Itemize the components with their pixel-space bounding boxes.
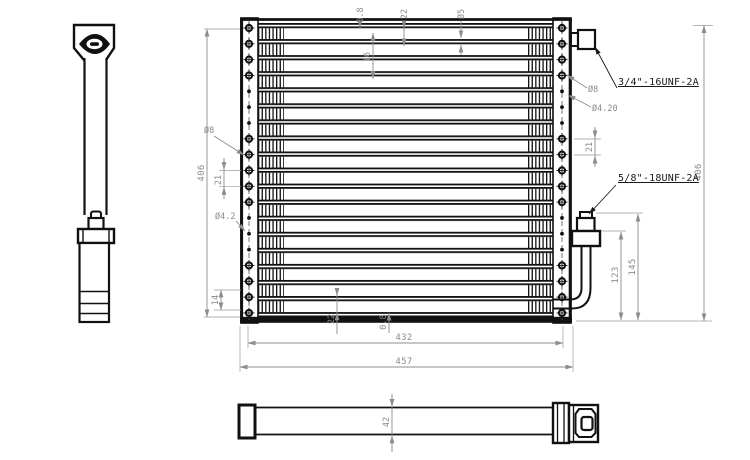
dim-tube-dia-label: Ø5 xyxy=(456,9,467,19)
dim-tube-pitch-top-label: 22 xyxy=(400,9,410,19)
dim-pipe-length-inner: 123 xyxy=(601,231,626,320)
dim-hole-pitch-left: 21 xyxy=(214,158,241,199)
dim-hole-small-left-label: Ø4.2 xyxy=(215,211,235,222)
side-view-fitting-neck xyxy=(89,218,104,229)
callout-top-port-label: 3/4"-16UNF-2A xyxy=(618,77,699,88)
side-view-tube-body xyxy=(85,58,107,215)
dim-pipe-length-inner-label: 123 xyxy=(611,266,621,283)
side-view-canister xyxy=(80,243,110,322)
dim-hole-dia-left: Ø8 xyxy=(204,125,244,155)
dim-core-width-label: 432 xyxy=(395,333,412,343)
dim-bottom-offset: 14 xyxy=(211,290,241,310)
dim-fin-height-label: 16 xyxy=(363,52,373,62)
dim-tube-pitch-bottom-label: 22 xyxy=(327,314,337,324)
dim-core-width: 432 xyxy=(248,326,563,348)
bottom-view-left-cap xyxy=(239,405,255,438)
dim-hole-pitch-right-label: 21 xyxy=(585,142,595,152)
dim-hole-small-right: Ø4.20 xyxy=(568,95,618,114)
dim-tube-wall-bottom: 0.8 xyxy=(379,313,389,333)
dim-depth: 42 xyxy=(382,394,392,452)
dim-hole-pitch-right: 21 xyxy=(574,127,601,167)
side-view-eye-slot xyxy=(90,42,99,46)
dim-tube-wall-bottom-label: 0.8 xyxy=(379,314,389,329)
dim-hole-small-right-label: Ø4.20 xyxy=(592,103,618,114)
technical-drawing: 406 406 432 457 0.8 xyxy=(0,0,750,460)
side-view xyxy=(74,25,114,322)
bottom-view-header-end xyxy=(553,403,569,443)
dim-height-left-label: 406 xyxy=(197,164,207,181)
dim-hole-dia-right-label: Ø8 xyxy=(588,84,598,95)
top-port-fitting xyxy=(571,30,595,49)
dim-hole-pitch-left-label: 21 xyxy=(214,175,224,185)
callout-bottom-port-label: 5/8"-18UNF-2A xyxy=(618,173,699,184)
dim-height-left: 406 xyxy=(197,29,240,317)
dim-tube-wall-top-label: 0.8 xyxy=(356,7,366,22)
tube-stack xyxy=(258,23,553,317)
dim-pipe-length-outer-label: 145 xyxy=(628,258,638,275)
dim-overall-width-label: 457 xyxy=(395,357,412,367)
callout-bottom-port: 5/8"-18UNF-2A xyxy=(589,173,699,214)
front-view xyxy=(240,18,600,323)
callout-top-port: 3/4"-16UNF-2A xyxy=(595,47,699,88)
bottom-view xyxy=(239,403,598,443)
bottom-view-port-hole xyxy=(582,417,593,430)
dim-depth-label: 42 xyxy=(382,417,392,427)
callouts: 3/4"-16UNF-2A 5/8"-18UNF-2A xyxy=(589,47,699,214)
dim-hole-dia-left-label: Ø8 xyxy=(204,125,214,136)
dim-bottom-offset-label: 14 xyxy=(211,295,221,305)
bottom-plate xyxy=(240,317,572,323)
